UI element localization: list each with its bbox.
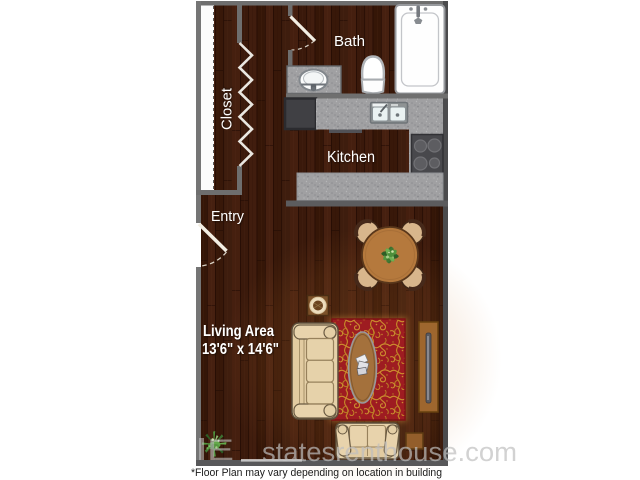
svg-text:Entry: Entry xyxy=(211,209,245,225)
svg-text:Bath: Bath xyxy=(334,33,365,50)
svg-text:13'6" x 14'6": 13'6" x 14'6" xyxy=(202,341,279,358)
svg-text:E: E xyxy=(207,434,234,467)
svg-text:Kitchen: Kitchen xyxy=(327,149,375,166)
svg-text:*Floor Plan may vary depending: *Floor Plan may vary depending on locati… xyxy=(191,467,442,479)
svg-text:Living Area: Living Area xyxy=(203,323,274,340)
svg-text:Closet: Closet xyxy=(220,88,236,130)
svg-text:statesrenthouse.com: statesrenthouse.com xyxy=(262,437,517,467)
